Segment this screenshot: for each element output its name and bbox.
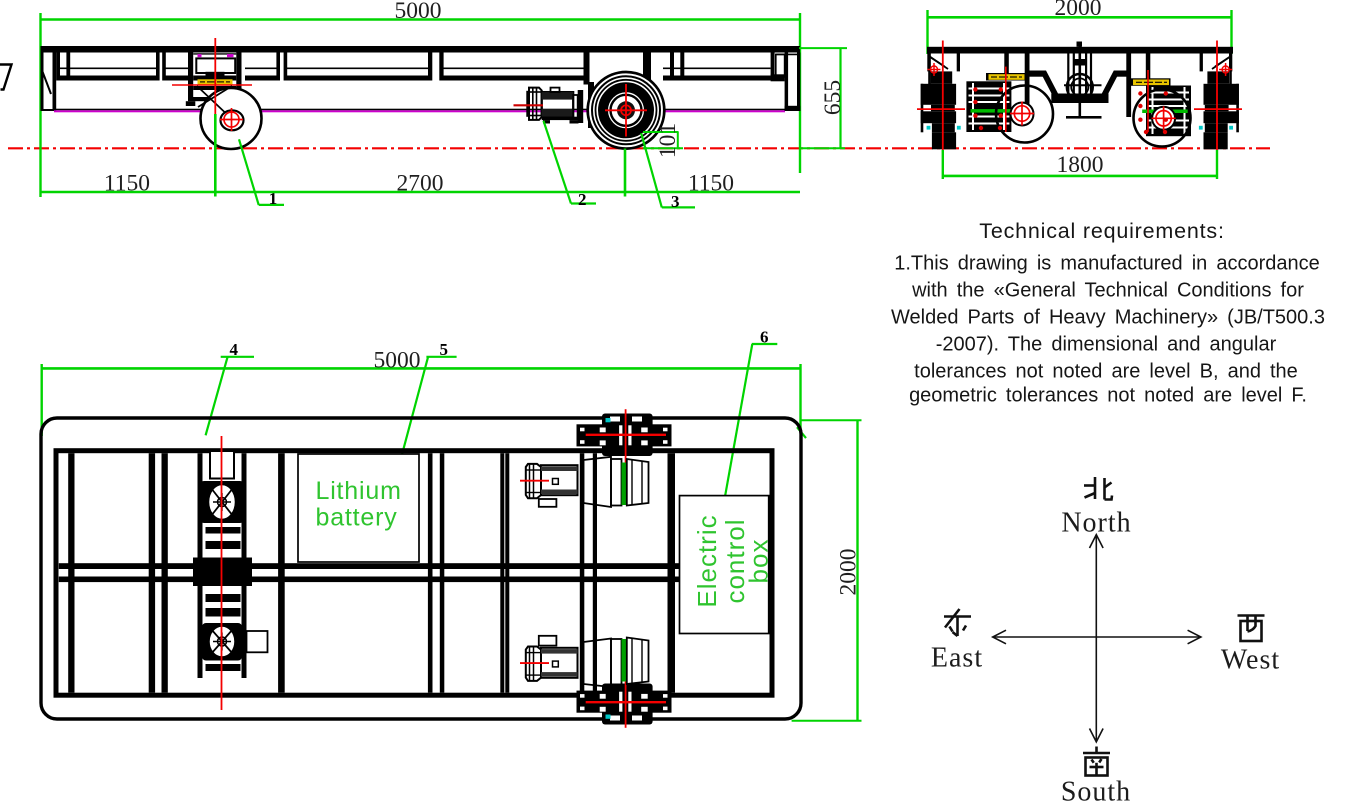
svg-text:5000: 5000 [395, 0, 442, 24]
svg-text:-2007). The dimensional and an: -2007). The dimensional and angular [936, 334, 1277, 356]
svg-text:1150: 1150 [104, 171, 150, 197]
svg-text:Lithium: Lithium [316, 477, 402, 505]
svg-text:3: 3 [671, 192, 680, 211]
svg-text:2000: 2000 [1055, 0, 1102, 21]
svg-text:South: South [1061, 777, 1131, 801]
svg-text:battery: battery [316, 504, 398, 532]
svg-text:2000: 2000 [836, 549, 862, 596]
svg-text:Welded Parts of Heavy Machiner: Welded Parts of Heavy Machinery» (JB/T50… [891, 307, 1325, 329]
svg-text:2700: 2700 [397, 171, 444, 197]
svg-text:101: 101 [655, 123, 681, 158]
svg-text:655: 655 [820, 80, 846, 115]
svg-text:5: 5 [440, 340, 449, 359]
svg-text:1800: 1800 [1057, 152, 1104, 178]
svg-text:North: North [1061, 508, 1131, 539]
svg-text:East: East [931, 643, 983, 674]
svg-text:Technical requirements:: Technical requirements: [979, 219, 1224, 243]
svg-text:with the «General Technical Co: with the «General Technical Conditions f… [911, 280, 1304, 302]
svg-text:box: box [744, 539, 774, 584]
svg-text:geometric tolerances not noted: geometric tolerances not noted are level… [909, 385, 1307, 407]
svg-text:5000: 5000 [374, 348, 421, 374]
svg-text:6: 6 [760, 328, 769, 347]
svg-text:Electric: Electric [692, 514, 722, 607]
svg-text:West: West [1221, 645, 1280, 676]
svg-text:4: 4 [230, 340, 239, 359]
svg-text:1.This drawing is manufactured: 1.This drawing is manufactured in accord… [894, 253, 1320, 275]
svg-text:1150: 1150 [688, 171, 734, 197]
svg-text:tolerances not noted are level: tolerances not noted are level B, and th… [914, 361, 1298, 383]
